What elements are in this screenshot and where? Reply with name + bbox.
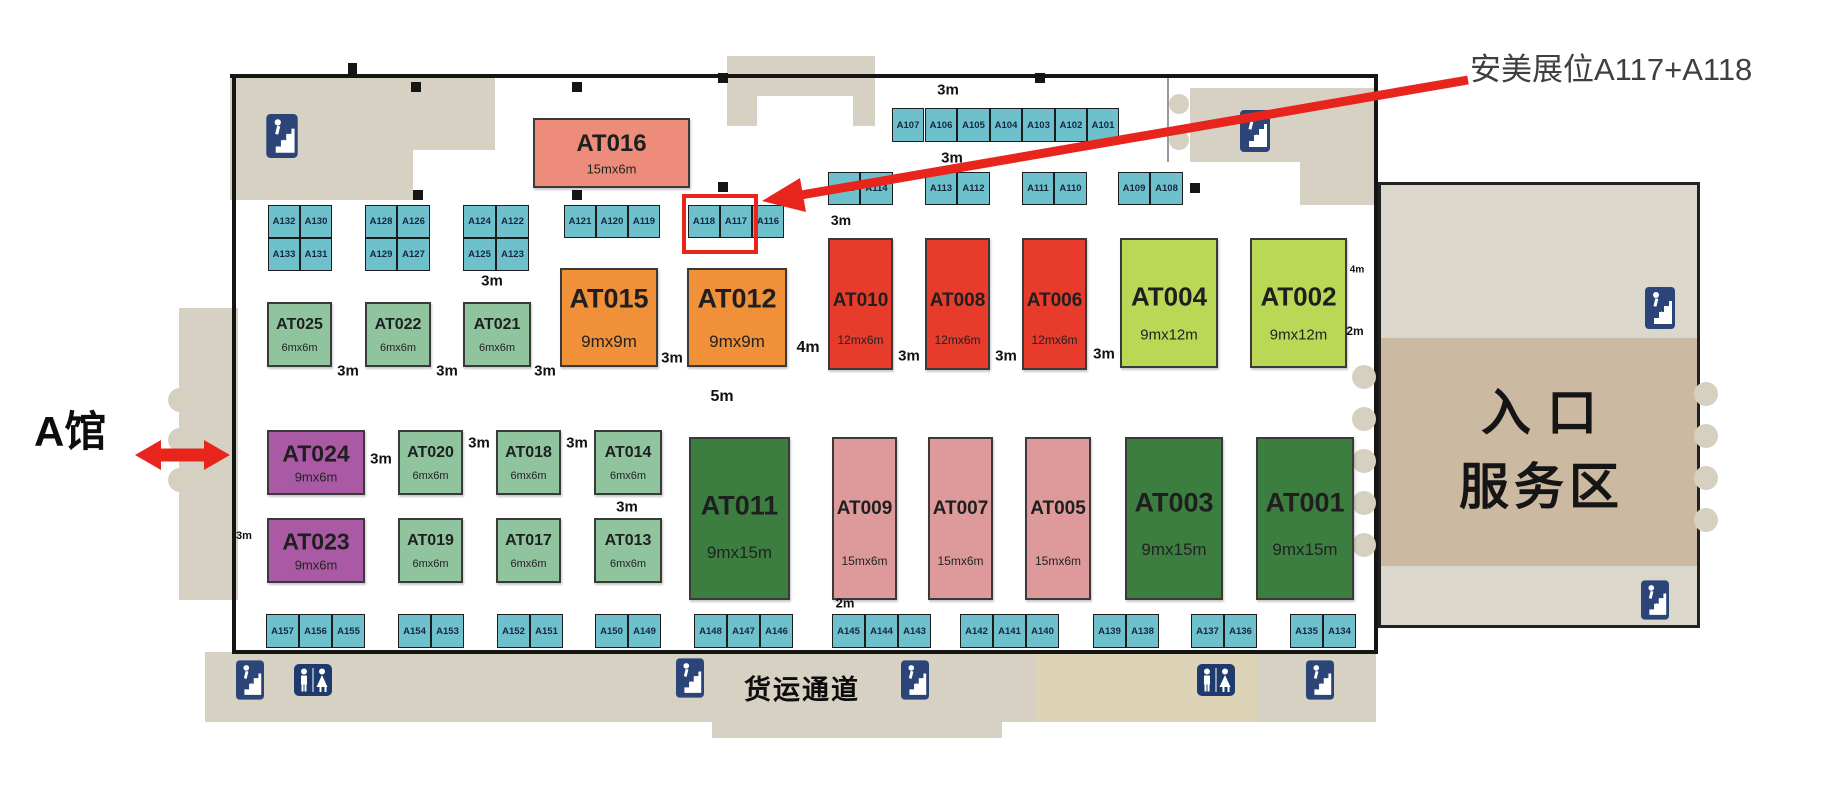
freight-passage-label: 货运通道 <box>712 668 892 707</box>
booth-A133: A133 <box>268 238 300 271</box>
booth-size-label: 15mx6m <box>834 554 895 568</box>
booth-id-label: AT013 <box>596 532 660 550</box>
booth-id-label: AT022 <box>367 316 429 334</box>
booth-A120: A120 <box>596 205 628 238</box>
booth-A104: A104 <box>990 108 1022 142</box>
dimension-label: 3m <box>370 451 392 468</box>
booth-A130: A130 <box>300 205 332 238</box>
dimension-label: 3m <box>534 363 556 380</box>
door-scallop <box>1694 424 1718 448</box>
booth-A149: A149 <box>628 614 661 648</box>
booth-A146: A146 <box>760 614 793 648</box>
dimension-label: 3m <box>831 212 851 228</box>
stairs-icon <box>901 660 929 700</box>
booth-id-label: AT009 <box>834 498 895 520</box>
booth-size-label: 9mx15m <box>691 543 788 563</box>
booth-A115: A115 <box>828 172 860 205</box>
door-scallop <box>168 428 192 452</box>
dimension-label: 3m <box>468 435 490 452</box>
column-marker <box>718 73 728 83</box>
booth-AT023: AT0239mx6m <box>267 518 365 583</box>
dimension-label: 3m <box>566 435 588 452</box>
booth-id-label: AT016 <box>535 130 688 158</box>
booth-size-label: 9mx12m <box>1122 326 1216 343</box>
booth-AT013: AT0136mx6m <box>594 518 662 583</box>
dimension-label: 4m <box>796 339 819 357</box>
door-scallop <box>168 468 192 492</box>
booth-A140: A140 <box>1026 614 1059 648</box>
booth-AT015: AT0159mx9m <box>560 268 658 367</box>
door-scallop <box>1352 533 1376 557</box>
booth-AT014: AT0146mx6m <box>594 430 662 495</box>
booth-A102: A102 <box>1055 108 1087 142</box>
stairs-icon <box>266 114 298 158</box>
booth-A123: A123 <box>496 238 529 271</box>
booth-AT012: AT0129mx9m <box>687 268 787 367</box>
booth-A124: A124 <box>463 205 496 238</box>
booth-id-label: AT023 <box>269 528 363 555</box>
booth-A101: A101 <box>1087 108 1119 142</box>
booth-A148: A148 <box>694 614 727 648</box>
booth-id-label: AT001 <box>1258 487 1352 518</box>
booth-size-label: 12mx6m <box>830 333 891 347</box>
booth-A108: A108 <box>1150 172 1183 205</box>
booth-size-label: 6mx6m <box>596 470 660 482</box>
booth-size-label: 15mx6m <box>930 554 991 568</box>
dimension-label: 3m <box>337 363 359 380</box>
door-scallop <box>1169 130 1189 150</box>
booth-size-label: 15mx6m <box>535 161 688 176</box>
booth-A112: A112 <box>957 172 990 205</box>
booth-A121: A121 <box>564 205 596 238</box>
booth-size-label: 9mx9m <box>562 332 656 352</box>
booth-A105: A105 <box>957 108 990 142</box>
booth-A151: A151 <box>530 614 563 648</box>
booth-size-label: 9mx15m <box>1127 540 1221 560</box>
booth-AT019: AT0196mx6m <box>398 518 463 583</box>
booth-id-label: AT025 <box>269 316 330 334</box>
booth-A122: A122 <box>496 205 529 238</box>
dimension-label: 3m <box>995 348 1017 365</box>
door-scallop <box>1169 94 1189 114</box>
booth-size-label: 9mx6m <box>269 558 363 573</box>
wall-top <box>230 74 1378 78</box>
booth-AT003: AT0039mx15m <box>1125 437 1223 600</box>
booth-A144: A144 <box>865 614 898 648</box>
booth-id-label: AT005 <box>1027 498 1089 520</box>
dimension-label: 3m <box>481 273 503 290</box>
booth-A150: A150 <box>595 614 628 648</box>
entrance-service-area: 入口 服务区 <box>1378 182 1700 628</box>
dimension-label: 3m <box>661 350 683 367</box>
dimension-label: 3m <box>616 499 638 516</box>
booth-AT006: AT00612mx6m <box>1022 238 1087 370</box>
booth-A157: A157 <box>266 614 299 648</box>
booth-A103: A103 <box>1022 108 1055 142</box>
wall-bottom <box>232 650 1378 654</box>
dimension-label: 4m <box>1350 265 1364 276</box>
door-scallop <box>1352 365 1376 389</box>
structure-top-right-2 <box>1300 150 1376 205</box>
booth-A138: A138 <box>1126 614 1159 648</box>
column-marker <box>348 63 357 76</box>
booth-AT004: AT0049mx12m <box>1120 238 1218 368</box>
entrance-label-line2: 服务区 <box>1381 447 1697 519</box>
booth-A110: A110 <box>1054 172 1087 205</box>
booth-id-label: AT012 <box>689 283 785 314</box>
booth-A135: A135 <box>1290 614 1323 648</box>
structure-top-left-2 <box>413 78 495 150</box>
toilet-icon <box>294 664 332 696</box>
booth-size-label: 6mx6m <box>269 342 330 354</box>
booth-AT016: AT01615mx6m <box>533 118 690 188</box>
booth-AT005: AT00515mx6m <box>1025 437 1091 600</box>
wall-divider <box>1167 78 1169 162</box>
booth-A147: A147 <box>727 614 760 648</box>
booth-AT008: AT00812mx6m <box>925 238 990 370</box>
booth-A152: A152 <box>497 614 530 648</box>
booth-AT009: AT00915mx6m <box>832 437 897 600</box>
booth-AT018: AT0186mx6m <box>496 430 561 495</box>
booth-A155: A155 <box>332 614 365 648</box>
booth-A113: A113 <box>925 172 957 205</box>
booth-id-label: AT007 <box>930 498 991 520</box>
booth-AT001: AT0019mx15m <box>1256 437 1354 600</box>
structure-top-left <box>230 78 413 200</box>
stairs-icon <box>236 660 264 700</box>
column-marker <box>572 190 582 200</box>
stairs-icon <box>1645 287 1675 329</box>
booth-size-label: 15mx6m <box>1027 554 1089 568</box>
dimension-label: 2m <box>836 596 855 611</box>
structure-top-mid-leg <box>727 96 757 126</box>
highlight-box <box>682 194 758 254</box>
wall-left <box>232 74 236 654</box>
annotation-label: 安美展位A117+A118 <box>1470 44 1752 89</box>
booth-A143: A143 <box>898 614 931 648</box>
booth-A145: A145 <box>832 614 865 648</box>
booth-size-label: 9mx15m <box>1258 540 1352 560</box>
booth-id-label: AT020 <box>400 444 461 462</box>
booth-AT022: AT0226mx6m <box>365 302 431 367</box>
dimension-label: 3m <box>1093 346 1115 363</box>
dimension-label: 3m <box>941 150 963 167</box>
column-marker <box>572 82 582 92</box>
door-scallop <box>1352 407 1376 431</box>
booth-A107: A107 <box>892 108 924 142</box>
dimension-label: 3m <box>436 363 458 380</box>
booth-size-label: 9mx9m <box>689 332 785 352</box>
booth-A154: A154 <box>398 614 431 648</box>
booth-size-label: 6mx6m <box>498 470 559 482</box>
booth-size-label: 12mx6m <box>927 333 988 347</box>
booth-size-label: 9mx12m <box>1252 326 1345 343</box>
stairs-icon <box>1306 660 1334 700</box>
booth-A128: A128 <box>365 205 397 238</box>
door-scallop <box>1694 466 1718 490</box>
booth-id-label: AT018 <box>498 444 559 462</box>
booth-A141: A141 <box>993 614 1026 648</box>
door-scallop <box>168 388 192 412</box>
hall-label: A馆 <box>34 398 106 459</box>
booth-A111: A111 <box>1022 172 1054 205</box>
booth-A125: A125 <box>463 238 496 271</box>
door-scallop <box>1694 382 1718 406</box>
booth-id-label: AT017 <box>498 532 559 550</box>
door-scallop <box>1352 491 1376 515</box>
structure-top-mid-leg <box>853 96 875 126</box>
booth-id-label: AT014 <box>596 444 660 462</box>
booth-A134: A134 <box>1323 614 1356 648</box>
booth-A129: A129 <box>365 238 397 271</box>
booth-A153: A153 <box>431 614 464 648</box>
column-marker <box>1035 73 1045 83</box>
dimension-label: 3m <box>898 348 920 365</box>
booth-A156: A156 <box>299 614 332 648</box>
booth-AT020: AT0206mx6m <box>398 430 463 495</box>
booth-AT021: AT0216mx6m <box>463 302 531 367</box>
stairs-icon <box>676 658 704 698</box>
booth-AT025: AT0256mx6m <box>267 302 332 367</box>
booth-A109: A109 <box>1118 172 1150 205</box>
toilet-icon <box>1197 664 1235 696</box>
booth-size-label: 12mx6m <box>1024 333 1085 347</box>
booth-id-label: AT002 <box>1252 281 1345 312</box>
booth-id-label: AT015 <box>562 283 656 314</box>
stairs-icon <box>1641 580 1669 620</box>
column-marker <box>413 190 423 200</box>
booth-id-label: AT006 <box>1024 290 1085 312</box>
column-marker <box>1190 183 1200 193</box>
booth-A142: A142 <box>960 614 993 648</box>
door-scallop <box>1694 508 1718 532</box>
booth-size-label: 6mx6m <box>367 342 429 354</box>
booth-id-label: AT019 <box>400 532 461 550</box>
booth-size-label: 6mx6m <box>465 342 529 354</box>
booth-A132: A132 <box>268 205 300 238</box>
booth-size-label: 6mx6m <box>498 558 559 570</box>
booth-A139: A139 <box>1093 614 1126 648</box>
booth-id-label: AT010 <box>830 290 891 312</box>
booth-AT011: AT0119mx15m <box>689 437 790 600</box>
door-scallop <box>1352 449 1376 473</box>
booth-A137: A137 <box>1191 614 1224 648</box>
booth-AT007: AT00715mx6m <box>928 437 993 600</box>
dimension-label: 5m <box>710 388 733 406</box>
booth-A131: A131 <box>300 238 332 271</box>
booth-size-label: 6mx6m <box>596 558 660 570</box>
booth-A106: A106 <box>925 108 957 142</box>
floor-plan-canvas: 入口 服务区 AT01615mx6mAT0159mx9mAT0129mx9mAT… <box>0 0 1839 799</box>
booth-id-label: AT021 <box>465 316 529 334</box>
booth-AT024: AT0249mx6m <box>267 430 365 495</box>
booth-A114: A114 <box>860 172 893 205</box>
booth-size-label: 6mx6m <box>400 470 461 482</box>
booth-id-label: AT011 <box>691 490 788 521</box>
dimension-label: 2m <box>1346 324 1363 338</box>
booth-AT010: AT01012mx6m <box>828 238 893 370</box>
dimension-label: 3m <box>236 530 252 542</box>
booth-id-label: AT008 <box>927 290 988 312</box>
dimension-label: 3m <box>937 82 959 99</box>
structure-bottom-tab <box>712 722 1002 738</box>
booth-A126: A126 <box>397 205 430 238</box>
booth-A127: A127 <box>397 238 430 271</box>
booth-id-label: AT004 <box>1122 281 1216 312</box>
structure-left-door <box>179 308 238 600</box>
column-marker <box>411 82 421 92</box>
booth-A136: A136 <box>1224 614 1257 648</box>
booth-AT002: AT0029mx12m <box>1250 238 1347 368</box>
entrance-label-line1: 入口 <box>1381 373 1697 445</box>
booth-id-label: AT024 <box>269 440 363 467</box>
booth-size-label: 6mx6m <box>400 558 461 570</box>
column-marker <box>718 182 728 192</box>
booth-size-label: 9mx6m <box>269 470 363 485</box>
booth-AT017: AT0176mx6m <box>496 518 561 583</box>
booth-A119: A119 <box>628 205 660 238</box>
stairs-icon <box>1240 110 1270 152</box>
booth-id-label: AT003 <box>1127 487 1221 518</box>
